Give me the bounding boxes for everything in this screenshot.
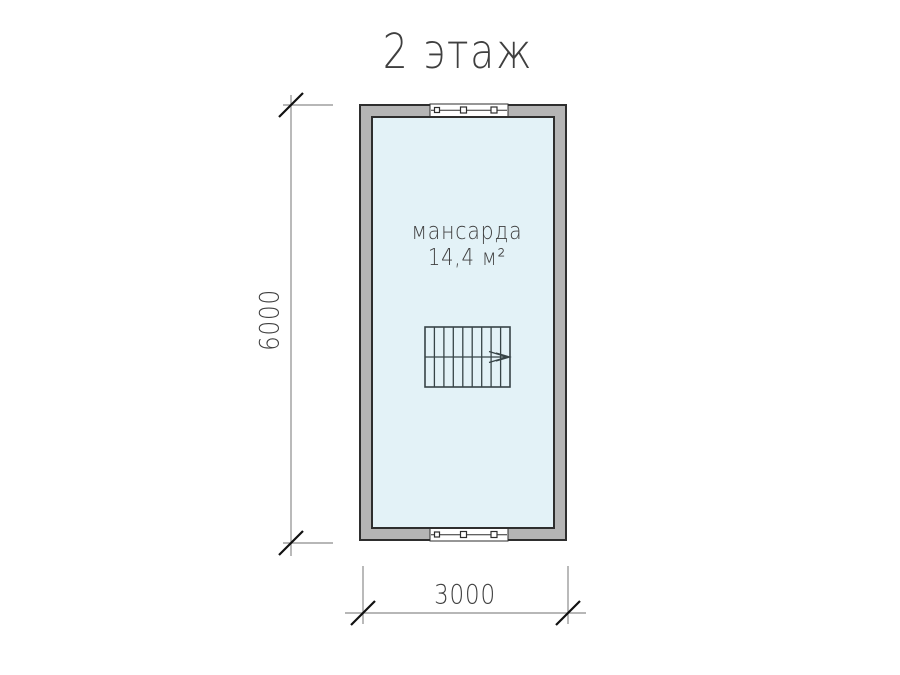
floor-plan [359, 104, 567, 541]
dimension-height-label: 6000 [255, 289, 286, 351]
room-interior [371, 116, 555, 529]
room-name-label: мансарда [411, 217, 522, 245]
floor-title: 2 этаж [383, 24, 533, 80]
room-area-label: 14,4 м² [428, 245, 506, 271]
dimension-width-label: 3000 [434, 580, 496, 611]
vertical-dimension [279, 93, 333, 556]
